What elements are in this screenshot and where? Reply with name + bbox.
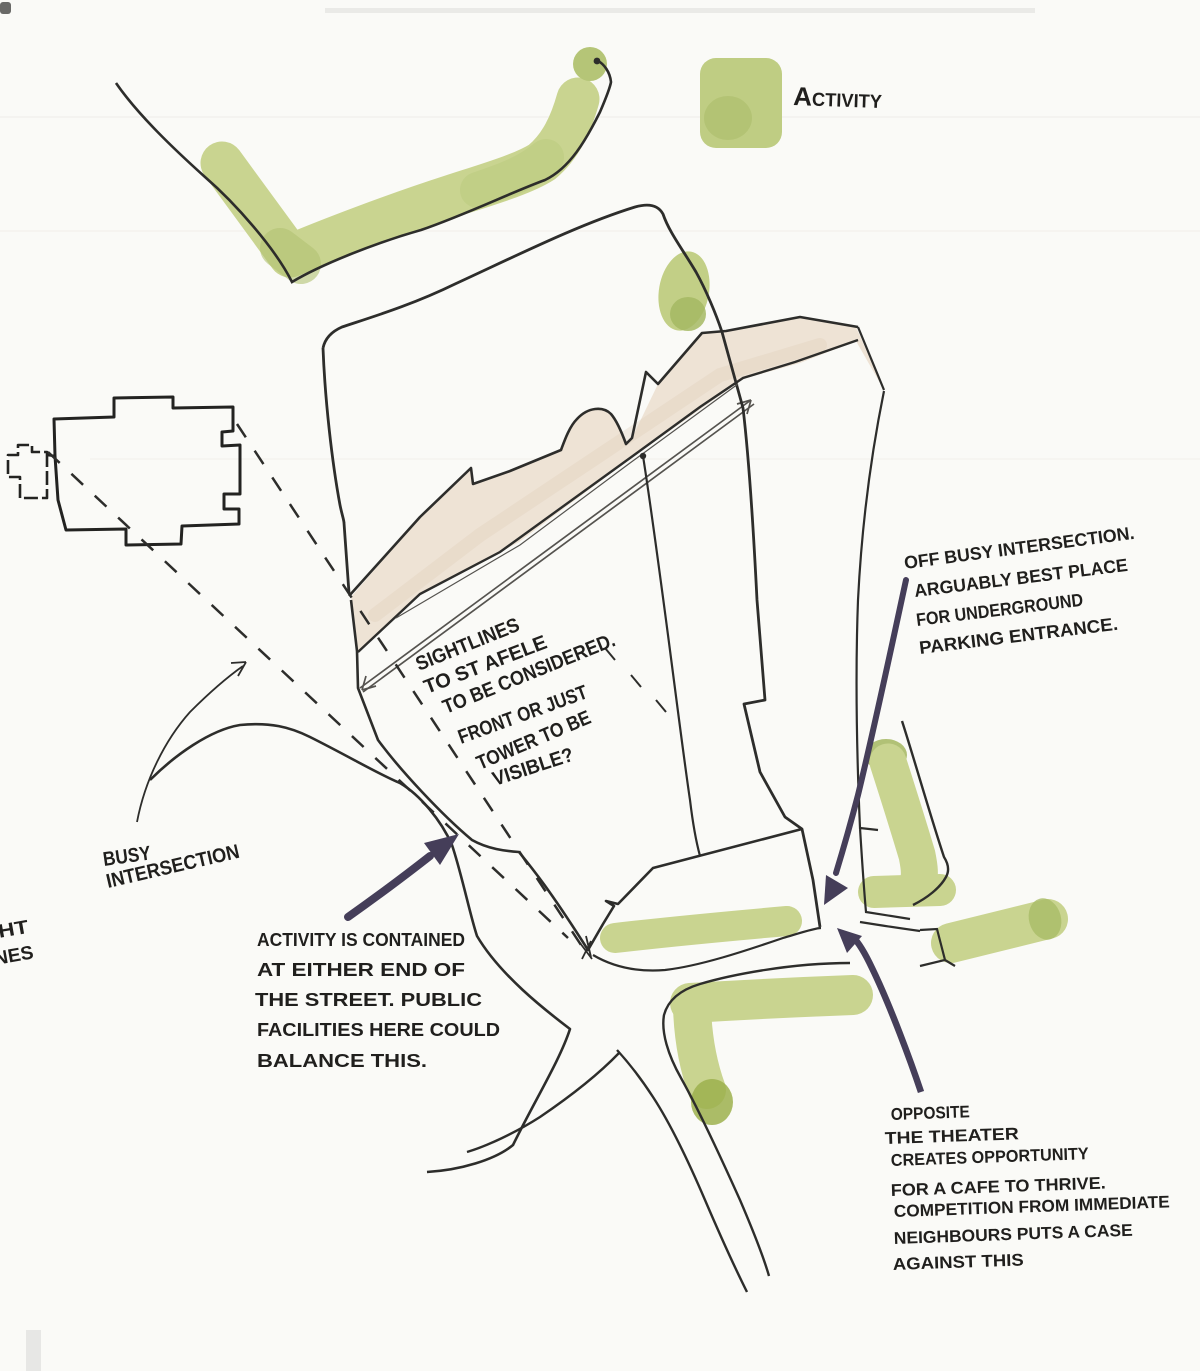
svg-text:FACILITIES HERE COULD: FACILITIES HERE COULD (257, 1020, 500, 1040)
svg-text:AT EITHER END OF: AT EITHER END OF (257, 960, 465, 980)
svg-text:THE STREET. PUBLIC: THE STREET. PUBLIC (255, 990, 482, 1010)
svg-text:BALANCE THIS.: BALANCE THIS. (257, 1051, 427, 1071)
svg-text:ACTIVITY IS CONTAINED: ACTIVITY IS CONTAINED (257, 930, 465, 950)
svg-text:OPPOSITE: OPPOSITE (890, 1102, 970, 1124)
